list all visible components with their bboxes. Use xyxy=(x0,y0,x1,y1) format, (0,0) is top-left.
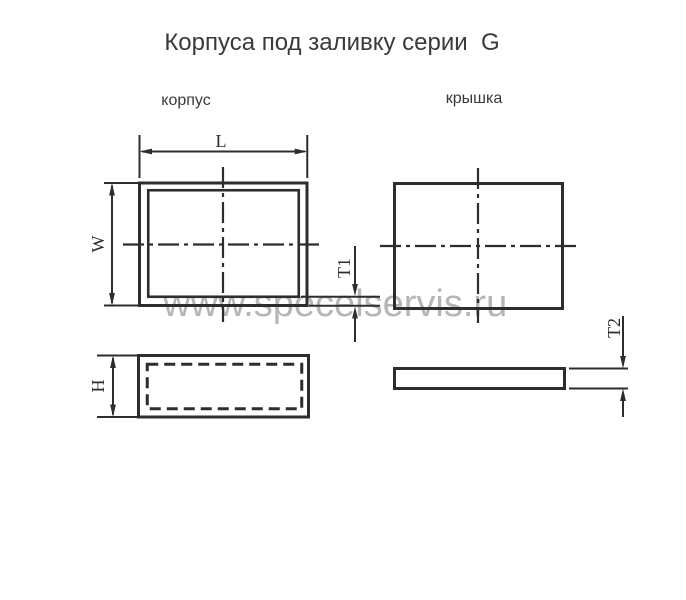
lid-side-view: T2 xyxy=(395,316,629,417)
dim-label-H: H xyxy=(88,380,108,393)
body-cavity-hidden-rect xyxy=(147,364,302,409)
drawing-sheet: Корпуса под заливку серии G корпус крышк… xyxy=(0,0,686,600)
arrowhead-up xyxy=(352,307,358,319)
arrowhead-up xyxy=(620,389,626,402)
arrowhead-down xyxy=(110,405,116,418)
arrowhead-down xyxy=(620,356,626,369)
body-side-view: H xyxy=(88,356,309,418)
arrowhead-right xyxy=(295,149,308,155)
dim-label-T1: T1 xyxy=(334,258,354,278)
lid-top-view xyxy=(380,168,580,323)
arrowhead-up xyxy=(110,356,116,369)
dimension-lid-thickness: T2 xyxy=(569,316,628,417)
body-top-view: L W T1 xyxy=(88,131,380,342)
dim-label-T2: T2 xyxy=(604,318,624,338)
arrowhead-down xyxy=(352,284,358,296)
arrowhead-left xyxy=(140,149,153,155)
lid-side-outline-rect xyxy=(395,369,565,389)
dim-label-L: L xyxy=(216,131,227,151)
arrowhead-down xyxy=(109,293,115,306)
arrowhead-up xyxy=(109,183,115,196)
dimension-height: H xyxy=(88,356,150,418)
dim-label-W: W xyxy=(88,236,108,253)
dimension-bottom-thickness: T1 xyxy=(301,246,380,342)
technical-drawing: L W T1 xyxy=(0,0,686,600)
